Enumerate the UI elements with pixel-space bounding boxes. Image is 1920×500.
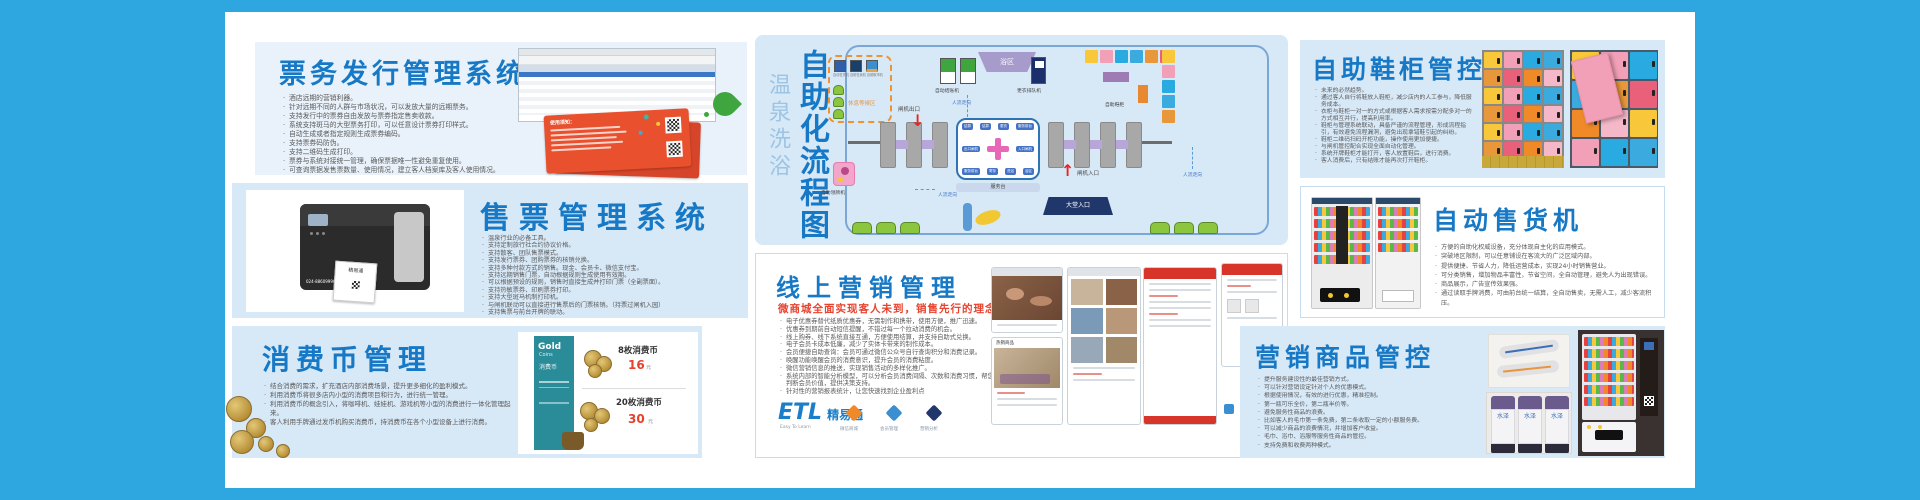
bullet-item: 突破地区限制，可以任意铺设在客流大的广泛区域内部。 bbox=[1435, 252, 1660, 261]
sofa-icon bbox=[900, 222, 920, 234]
turnstile-pillar bbox=[932, 122, 948, 168]
service-hall-box: 结算结算更衣服务前台 出口闸机 入口闸机 服务前台寄存洗浴浴区 bbox=[956, 118, 1040, 180]
qr-code-icon bbox=[349, 279, 362, 292]
locker-cell bbox=[1162, 80, 1175, 93]
etl-logo-text: ETL bbox=[778, 400, 822, 425]
sofa-icon bbox=[833, 109, 844, 119]
bullet-item: 支持多种付款方式的销售。现金、会员卡、微信支付宝。 bbox=[482, 265, 740, 272]
card-dispenser-icon bbox=[833, 162, 855, 186]
bullet-list: 结合消费的需求，扩充酒店内部消费场景，提升更多细化的盈利模式。利用消费币将很多店… bbox=[264, 382, 516, 427]
pill-exit-gate: 出口闸机 bbox=[962, 146, 980, 153]
service-desk-bar: 服务台 bbox=[956, 183, 1040, 192]
selfservice-machine-icon bbox=[850, 60, 862, 72]
feature-gem-icon bbox=[926, 405, 943, 422]
locker-cell bbox=[1162, 110, 1175, 123]
vending-machine-photo bbox=[1578, 330, 1664, 456]
feature-caption: 微信商城 bbox=[840, 426, 858, 432]
printed-label: 精易通 bbox=[333, 261, 378, 304]
locker-cell bbox=[1145, 50, 1158, 63]
queue-machine-label: 更衣排队机 bbox=[1017, 87, 1041, 94]
feature-caption: 营销分析 bbox=[920, 426, 938, 432]
bullet-item: 比如客人的毛巾第一条免费，第二条收取一定的小额服务费。 bbox=[1258, 417, 1480, 425]
bullet-item: 系统内部的智能分析模型，可以分析会员消费间隔、次数和消费习惯，帮您精准判断会员价… bbox=[780, 373, 1012, 389]
coin-price-card: Gold Coins 消费币 8枚消费币 16 元 20枚消费币 30 bbox=[518, 332, 698, 454]
bullet-item: 系统支持斑马的大型票务打印，可以任意设计票券打印样式。 bbox=[283, 121, 523, 130]
hall-pill: 更衣 bbox=[998, 123, 1009, 130]
checkout-machine-icon bbox=[940, 58, 956, 84]
bullet-item: 通过读取手牌消费，可由前台统一结算，全自动售卖，无需人工，减少客流积压。 bbox=[1435, 289, 1660, 308]
flow-label: 人流走向 bbox=[952, 99, 971, 106]
locker-cell bbox=[1484, 70, 1502, 86]
sofa-icon bbox=[833, 97, 844, 107]
bullet-item: 通过客人自行将鞋放入鞋柜，减少店内的人工参与，降低服务成本。 bbox=[1315, 95, 1477, 109]
pill-row-bottom: 服务前台寄存洗浴浴区 bbox=[962, 168, 1034, 175]
bullet-item: 根据使用情况，有效的进行优惠，精准控制。 bbox=[1258, 392, 1480, 400]
flow-label: 人流走向 bbox=[938, 191, 957, 198]
bullet-item: 针对远期不同的人群与市场状况，可以发放大量的远期票务。 bbox=[283, 103, 523, 112]
locker-cell bbox=[1630, 52, 1657, 79]
machine-side bbox=[1640, 338, 1658, 416]
hall-pill: 服务前台 bbox=[962, 168, 980, 175]
locker-cell bbox=[1601, 139, 1628, 166]
printer-screen bbox=[308, 214, 328, 226]
confetti-dot bbox=[656, 122, 660, 126]
locker-cell bbox=[1630, 139, 1657, 166]
locker-cell bbox=[1484, 106, 1502, 122]
coin-icon bbox=[258, 436, 274, 452]
bullet-item: 电子优惠券替代纸质优惠券，无需制作和携带，使用方便，推广迅速。 bbox=[780, 318, 1012, 326]
bullet-item: 自动生成或者指定规则生成票券编码。 bbox=[283, 130, 523, 139]
bullet-item: 未来的必然趋势。 bbox=[1315, 88, 1477, 95]
flow-label: 人流走向 bbox=[1183, 171, 1202, 178]
checkout-machine-icon bbox=[960, 58, 976, 84]
bullet-item: 支持发行中的票券自由发放与票券指定售卖收款。 bbox=[283, 112, 523, 121]
panel-subtitle: 微商城全面实现客人未到，销售先行的理念 bbox=[778, 301, 997, 316]
bullet-item: 可查询票据发售票数量、使用情况，建立客人档案库及客人使用情况。 bbox=[283, 166, 523, 175]
locker-cell bbox=[1544, 124, 1562, 140]
coin-icon bbox=[276, 444, 290, 458]
payment-column bbox=[1336, 206, 1348, 264]
printer-phone-text: 024-88609996 bbox=[306, 279, 335, 284]
bullet-item: 可以根据预设的规则，销售时直接生成并打印门票（全副票面）。 bbox=[482, 279, 740, 286]
poster-canvas: 票务发行管理系统 酒店远期的营销利器。针对远期不同的人群与市场状况，可以发放大量… bbox=[0, 0, 1920, 500]
checkout-label: 自动结账机 bbox=[935, 87, 959, 94]
app-screenshot bbox=[1067, 267, 1141, 425]
bullet-item: 可以减少商品的浪费情况，并增加客户收益。 bbox=[1258, 425, 1480, 433]
bullet-list: 酒店远期的营销利器。针对远期不同的人群与市场状况，可以发放大量的远期票务。支持发… bbox=[283, 94, 523, 175]
coin-item-name: 20枚消费币 bbox=[616, 396, 662, 408]
sofa-icon bbox=[876, 222, 896, 234]
sofa-icon bbox=[833, 85, 844, 95]
bullet-item: 支持二维码生成打印。 bbox=[283, 148, 523, 157]
locker-cell bbox=[1524, 124, 1542, 140]
table-header bbox=[519, 65, 715, 72]
locker-cell bbox=[1524, 70, 1542, 86]
ticket-card: 使用须知： bbox=[544, 108, 692, 174]
bullet-item: 方便的自助化权威设备，充分体现自主化的应用模式。 bbox=[1435, 243, 1660, 252]
locker-cell bbox=[1504, 88, 1522, 104]
bullet-item: 与闸机管控配合实现全面自动化管理。 bbox=[1315, 144, 1477, 151]
panel-title: 线上营销管理 bbox=[776, 268, 962, 303]
turnstile-pillar bbox=[1126, 122, 1142, 168]
sofa-icon bbox=[852, 222, 872, 234]
pill-row-top: 结算结算更衣服务前台 bbox=[962, 123, 1034, 130]
turnstile-pillar bbox=[1100, 122, 1116, 168]
bullet-item: 鞋柜二维码扫码开柜功能，操作使用更加便捷。 bbox=[1315, 137, 1477, 144]
panel-title: 售票管理系统 bbox=[480, 193, 714, 237]
pill-entry-gate: 入口闸机 bbox=[1016, 146, 1034, 153]
coin-pouch-icon bbox=[562, 432, 584, 450]
qr-code-icon bbox=[666, 141, 683, 158]
bullet-item: 提升服务建设性的最佳营销方式。 bbox=[1258, 376, 1480, 384]
coin-dispenser-icon bbox=[866, 60, 878, 72]
rest-area-box: 自动售货机 自助售卖机 自助取币机 休息等候区 bbox=[828, 55, 892, 123]
panel-title: 票务发行管理系统 bbox=[279, 52, 527, 91]
locker-cell bbox=[1504, 106, 1522, 122]
bullet-item: 票券与系统对接统一管理，确保票据唯一性避免重复使用。 bbox=[283, 157, 523, 166]
queue-machine-icon bbox=[1031, 57, 1046, 84]
gate-entry-label: 闸机入口 bbox=[1077, 169, 1099, 177]
panel-title: 自动售货机 bbox=[1433, 201, 1583, 237]
shoe-bench bbox=[1103, 72, 1129, 82]
panel-online-marketing: 线上营销管理 微商城全面实现客人未到，销售先行的理念 电子优惠券替代纸质优惠券，… bbox=[755, 253, 1288, 458]
qr-code-icon bbox=[665, 117, 682, 134]
locker-cell bbox=[1162, 95, 1175, 108]
shoe-locker-open bbox=[1138, 85, 1148, 103]
coin-icon bbox=[230, 430, 254, 454]
locker-cell bbox=[1504, 124, 1522, 140]
locker-cell bbox=[1544, 70, 1562, 86]
bullet-item: 支持大型斑马机制打印机。 bbox=[482, 294, 740, 301]
bullet-item: 会员便捷自助查询：会员可通过微信公众号自行查询积分和消费记录。 bbox=[780, 349, 1012, 357]
toothbrush-kit-photo bbox=[1488, 334, 1570, 388]
locker-cell bbox=[1524, 106, 1542, 122]
locker-cell bbox=[1630, 81, 1657, 108]
bullet-list: 方便的自助化权威设备，充分体现自主化的应用模式。突破地区限制，可以任意铺设在客流… bbox=[1435, 243, 1660, 308]
printer-photo: 024-88609996 精易通 bbox=[246, 190, 464, 312]
bullet-item: 酒店远期的营销利器。 bbox=[283, 94, 523, 103]
bullet-item: 可分类销售，增加物品丰富性，节省空间，全自动管理，避免人为出现错误。 bbox=[1435, 271, 1660, 280]
bullet-list: 温泉行业的必备工具。支持定制旅行社合约协议价格。支持散客、团队售票模式。支持发行… bbox=[482, 235, 740, 316]
bullet-item: 微信营销信息的推送，实现销售活动的多样化推广。 bbox=[780, 365, 1012, 373]
hall-pill: 浴区 bbox=[1023, 168, 1034, 175]
locker-cell bbox=[1544, 52, 1562, 68]
bullet-item: 支持免费和收费两种模式。 bbox=[1258, 442, 1480, 450]
printer-side-panel bbox=[394, 212, 424, 282]
locker-cell bbox=[1162, 50, 1175, 63]
bullet-item: 支持票券码防伪。 bbox=[283, 139, 523, 148]
panel-title: 自助鞋柜管控 bbox=[1312, 50, 1486, 86]
locker-cell bbox=[1524, 88, 1542, 104]
bullet-item: 可以针对营销设定针对个人的优惠模式。 bbox=[1258, 384, 1480, 392]
bullet-item: 商品展示，广告宣传效果强。 bbox=[1435, 280, 1660, 289]
bullet-item: 利用消费币的概念引入，将咖啡机、娃娃机、游戏机等小型的消费进行一体化管理起来。 bbox=[264, 400, 516, 418]
panel-flowchart: 温泉洗浴 自助化流程图 自动售货机 自助售卖机 自助取币机 休息等候区 自动结账… bbox=[755, 35, 1288, 245]
bullet-item: 与闸机联动可以直接进行售票后的门票核销。（持票过闸机入园） bbox=[482, 302, 740, 309]
sofa-icon bbox=[1174, 222, 1194, 234]
window-toolbar bbox=[519, 56, 715, 65]
vending-machines-photo bbox=[1307, 193, 1425, 313]
bullet-item: 支持发行票券、团购票券的核销兑换。 bbox=[482, 257, 740, 264]
feature-caption: 会员管理 bbox=[880, 426, 898, 432]
locker-cell bbox=[1544, 106, 1562, 122]
bullet-item: 第一瓶可乐全价，第二瓶半价等。 bbox=[1258, 401, 1480, 409]
panel-vending: 自动售货机 方便的自助化权威设备，充分体现自主化的应用模式。突破地区限制，可以任… bbox=[1300, 186, 1665, 318]
locker-cell bbox=[1544, 88, 1562, 104]
panel-shoe-cabinet: 自助鞋柜管控 未来的必然趋势。通过客人自行将鞋放入鞋柜，减少店内的人工参与，降低… bbox=[1300, 40, 1665, 178]
locker-photo-open bbox=[1570, 50, 1658, 168]
panel-ticket-issuing: 票务发行管理系统 酒店远期的营销利器。针对远期不同的人群与市场状况，可以发放大量… bbox=[255, 42, 747, 175]
status-dot bbox=[704, 112, 709, 117]
app-screenshot bbox=[991, 267, 1063, 333]
locker-cell bbox=[1100, 50, 1113, 63]
hall-pill: 结算 bbox=[980, 123, 991, 130]
feature-cube-icon bbox=[886, 405, 903, 422]
locker-cell bbox=[1504, 70, 1522, 86]
locker-cell bbox=[1484, 124, 1502, 140]
bottles-photo: 水泽 水泽 水泽 bbox=[1486, 392, 1572, 454]
sofa-icon bbox=[1198, 222, 1218, 234]
bullet-item: 利用消费币将很多店内小型的消费项目和行为，进行统一管理。 bbox=[264, 391, 516, 400]
sofa-icon bbox=[1150, 222, 1170, 234]
turnstile-pillar bbox=[1074, 122, 1090, 168]
panel-marketing-goods: 营销商品管控 提升服务建设性的最佳营销方式。可以针对营销设定针对个人的优惠模式。… bbox=[1240, 326, 1665, 458]
locker-cell bbox=[1162, 65, 1175, 78]
bullet-item: 针对性的营销报表统计，让您快速找到企业盈利点 bbox=[780, 388, 1012, 396]
shoe-cabinet-col bbox=[1162, 50, 1175, 123]
shoe-cabinet-label: 自助鞋柜 bbox=[1105, 101, 1124, 108]
panel-ticket-sales: 024-88609996 精易通 售票管理系统 温泉行业的必备工具。支持定制旅行… bbox=[232, 183, 748, 318]
hall-pill: 结算 bbox=[962, 123, 973, 130]
direction-cross-icon bbox=[987, 138, 1009, 160]
confetti-dot bbox=[638, 131, 642, 135]
bullet-item: 结合消费的需求，扩充酒店内部消费场景，提升更多细化的盈利模式。 bbox=[264, 382, 516, 391]
hot-goods-label: 热销商品 bbox=[996, 340, 1062, 346]
bullet-item: 支持售票与前台开牌的联动。 bbox=[482, 309, 740, 316]
rest-machines-label: 自动售货机 自助售卖机 自助取币机 bbox=[833, 74, 883, 78]
locker-cell bbox=[1504, 52, 1522, 68]
vending-machine-icon bbox=[834, 60, 846, 72]
fish-pool-icon bbox=[963, 203, 972, 231]
locker-photo bbox=[1482, 50, 1564, 168]
coin-item-price: 16 bbox=[628, 358, 645, 372]
locker-cell bbox=[1484, 88, 1502, 104]
poster-sheet: 票务发行管理系统 酒店远期的营销利器。针对远期不同的人群与市场状况，可以发放大量… bbox=[225, 12, 1695, 488]
app-screenshot bbox=[1143, 267, 1217, 425]
locker-cell bbox=[1630, 110, 1657, 137]
bullet-item: 客人利用手牌通过发币机购买消费币，持消费币在各个小型设备上进行消费。 bbox=[264, 418, 516, 427]
exit-arrow-icon: ↓ bbox=[911, 113, 924, 129]
coin-item-name: 8枚消费币 bbox=[618, 344, 658, 356]
bullet-item: 提供便捷、节省人力，降低运营成本，实现24小时销售营业。 bbox=[1435, 262, 1660, 271]
bullet-list: 电子优惠券替代纸质优惠券，无需制作和携带，使用方便，推广迅速。优惠券到期前自动短… bbox=[780, 318, 1012, 396]
panel-title: 营销商品管控 bbox=[1255, 338, 1435, 374]
card-dispenser-label: 自助领牌机 bbox=[821, 189, 845, 196]
hall-pill: 寄存 bbox=[987, 168, 998, 175]
window-titlebar bbox=[519, 49, 715, 56]
locker-cell bbox=[1484, 52, 1502, 68]
locker-cell bbox=[1130, 50, 1143, 63]
coin-item-price: 30 bbox=[628, 412, 645, 426]
locker-cell bbox=[1524, 52, 1542, 68]
coin-icon bbox=[226, 396, 252, 422]
locker-cell bbox=[1572, 139, 1599, 166]
bullet-item: 鞋柜与管理系统联动，具备严谨的流程管理，形成流程指引，有效避免流程漏洞，避免出现… bbox=[1315, 123, 1477, 137]
bullet-list: 提升服务建设性的最佳营销方式。可以针对营销设定针对个人的优惠模式。根据使用情况，… bbox=[1258, 376, 1480, 450]
bullet-item: 支持定制旅行社合约协议价格。 bbox=[482, 242, 740, 249]
bath-zone: 浴区 bbox=[978, 52, 1036, 72]
lobby-entrance: 大堂入口 bbox=[1043, 197, 1113, 215]
mini-app-icon bbox=[1224, 404, 1234, 414]
flow-title-bold: 自助化流程图 bbox=[789, 49, 833, 241]
rest-area-label: 休息等候区 bbox=[848, 99, 876, 107]
panel-consume-coin: 消费币管理 结合消费的需求，扩充酒店内部消费场景，提升更多细化的盈利模式。利用消… bbox=[232, 326, 702, 458]
bullet-item: 衣柜与鞋柜一对一的方式或根据客人需求按需分配多对一的方式相互并行，提高利用率。 bbox=[1315, 109, 1477, 123]
turnstile-pillar bbox=[880, 122, 896, 168]
bullet-item: 毛巾、浴巾、浴服等服务性商品的管控。 bbox=[1258, 433, 1480, 441]
bullet-item: 优惠券到期前自动短信提醒，不错过每一个拉动消费的机会。 bbox=[780, 326, 1012, 334]
bullet-list: 未来的必然趋势。通过客人自行将鞋放入鞋柜，减少店内的人工参与，降低服务成本。衣柜… bbox=[1315, 88, 1477, 165]
app-screenshot: 热销商品 bbox=[991, 337, 1063, 425]
bullet-item: 唤醒功能唤醒会员的消费意识，提升会员的消费粘度。 bbox=[780, 357, 1012, 365]
hall-pill: 服务前台 bbox=[1016, 123, 1034, 130]
hall-pill: 洗浴 bbox=[1005, 168, 1016, 175]
panel-title: 消费币管理 bbox=[262, 338, 432, 378]
bullet-item: 客人消费后，只有结账才能再次打开鞋柜。 bbox=[1315, 158, 1477, 165]
bullet-item: 系统开牌鞋柜才能打开，客人放置鞋后，进行消费。 bbox=[1315, 151, 1477, 158]
shoe-cabinet-row bbox=[1085, 50, 1173, 63]
bullet-item: 避免服务性商品的浪费。 bbox=[1258, 409, 1480, 417]
locker-cell bbox=[1085, 50, 1098, 63]
locker-cell bbox=[1115, 50, 1128, 63]
entry-arrow-icon: ↑ bbox=[1061, 163, 1074, 179]
